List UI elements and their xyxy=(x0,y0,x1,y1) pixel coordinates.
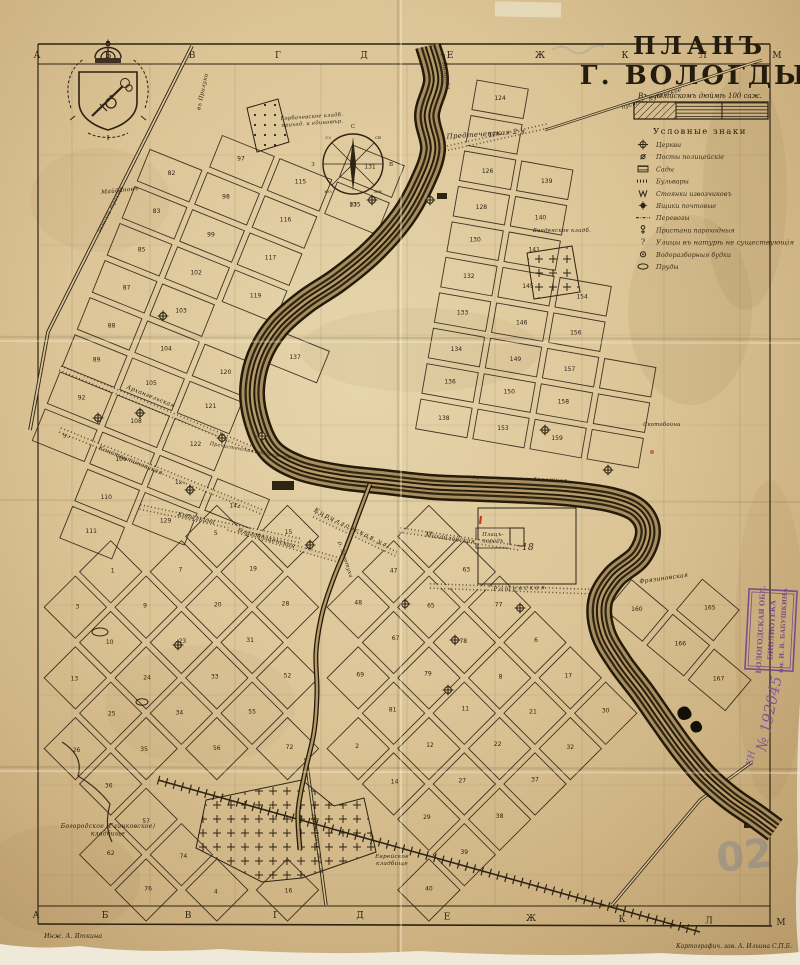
map-sheet: АБВГДЕЖКЛМАБВГДЕЖКЛМ ПЛАНЪ Г. ВОЛОГДЫ. В… xyxy=(0,0,800,965)
block-number: 83 xyxy=(153,208,161,215)
legend-item-label: Пруды xyxy=(655,263,679,271)
block-number: 62 xyxy=(107,850,115,857)
block-number: 3 xyxy=(75,604,79,611)
block-number: 32 xyxy=(566,744,574,751)
legend-item-label: Водоразборныя будки xyxy=(655,251,731,259)
block-number: 12 xyxy=(426,742,434,749)
block-number: 97 xyxy=(237,155,245,162)
block-number: 13 xyxy=(71,675,79,682)
block-number: 153 xyxy=(497,425,509,432)
block-number: 115 xyxy=(295,179,307,186)
block-number: 136 xyxy=(444,379,456,386)
block-number: 69 xyxy=(356,671,364,678)
block-number: 150 xyxy=(503,389,515,396)
block-number: 166 xyxy=(675,641,687,648)
block-number: 128 xyxy=(476,204,488,211)
border-letter-top-А: А xyxy=(34,51,41,61)
legend-item-label: Бульвары xyxy=(655,178,689,186)
block-number: 65 xyxy=(427,603,435,610)
block-number: 5 xyxy=(214,530,218,537)
block-number: 10 xyxy=(106,639,114,646)
legend-heading: Условные знаки xyxy=(653,127,747,137)
map-label-evreyskoe: Еврейскоекладбище xyxy=(374,854,409,867)
block-number: 145 xyxy=(522,283,534,290)
tape-patch xyxy=(495,1,561,17)
block-number: 103 xyxy=(175,308,187,315)
block-number: 134 xyxy=(451,346,463,353)
border-letter-top-Д: Д xyxy=(360,51,367,61)
border-letter-bottom-Б: Б xyxy=(102,911,109,921)
block-number: 30 xyxy=(602,708,610,715)
border-letter-bottom-К: К xyxy=(619,915,626,925)
border-letter-top-Ж: Ж xyxy=(535,51,545,61)
svg-text:СЗ: СЗ xyxy=(325,135,331,140)
cemetery-vvedenskoe xyxy=(527,246,580,299)
block-number: 77 xyxy=(495,602,503,609)
credit-right: Картографич. зав. А. Ильина С.П.Б. xyxy=(675,943,792,950)
block-number: 9 xyxy=(143,603,147,610)
legend-item-label: Пристани пароходныя xyxy=(655,226,735,234)
block-number: 2 xyxy=(355,743,359,750)
border-letter-top-Г: Г xyxy=(275,51,281,61)
legend-item-label: Сады xyxy=(656,165,674,173)
block-number: 19 xyxy=(249,565,257,572)
block-number: 149 xyxy=(510,356,522,363)
block-number: 116 xyxy=(280,217,292,224)
block-number: 122 xyxy=(190,441,202,448)
svg-text:ЮЗ: ЮЗ xyxy=(324,189,332,194)
block-number: 33 xyxy=(211,673,219,680)
border-letter-bottom-В: В xyxy=(185,911,192,921)
block-number: 38 xyxy=(496,813,504,820)
block-number: 81 xyxy=(389,707,397,714)
garden-icon xyxy=(638,166,648,172)
block-number: 16 xyxy=(285,888,293,895)
legend-item-label: Ящики почтовые xyxy=(655,202,716,210)
credit-left: Инж. А. Яткина xyxy=(43,932,102,940)
border-letter-bottom-Ж: Ж xyxy=(526,914,536,924)
legend-item: Сады xyxy=(638,165,674,173)
block-number: 47 xyxy=(390,567,398,574)
block-number: 63 xyxy=(462,566,470,573)
block-number: 99 xyxy=(207,231,215,238)
block-number: 135 xyxy=(349,202,361,209)
legend-item: ?Улицы въ натурѣ не существующія xyxy=(641,238,794,247)
block-number: 154 xyxy=(576,293,588,300)
block-number: 25 xyxy=(108,711,116,718)
block-number: 7 xyxy=(178,566,182,573)
block-number: 140 xyxy=(535,214,547,221)
block-number: 52 xyxy=(284,672,292,679)
plan-title-line1: ПЛАНЪ xyxy=(633,31,767,60)
ghost-digits: 02 xyxy=(714,830,774,882)
block-number: 165 xyxy=(704,604,716,611)
block-number: 74 xyxy=(180,853,188,860)
block-number: 108 xyxy=(130,418,142,425)
block-number: 21 xyxy=(529,709,537,716)
svg-text:В: В xyxy=(389,162,393,168)
block-number: 4 xyxy=(214,889,218,896)
block-number: 133 xyxy=(457,310,469,317)
block-number: 157 xyxy=(564,366,576,373)
svg-text:З: З xyxy=(311,162,315,168)
legend-item-label: Перевозы xyxy=(655,214,690,222)
border-letter-bottom-Д: Д xyxy=(356,911,363,921)
block-number: 98 xyxy=(222,193,230,200)
block-number: 159 xyxy=(551,435,563,442)
legend-item-label: Стоянки извозчиковъ xyxy=(656,190,732,198)
block-number: 11 xyxy=(461,706,469,713)
block-number: 119 xyxy=(250,293,262,300)
block-number: 55 xyxy=(248,709,256,716)
block-number: 22 xyxy=(494,741,502,748)
block-number: 85 xyxy=(138,246,146,253)
block-number: 78 xyxy=(459,638,467,645)
svg-text:С: С xyxy=(351,124,355,130)
block-number: 39 xyxy=(460,849,468,856)
map-label-skotoboyni: Скотобойни xyxy=(643,421,681,428)
block-number: 139 xyxy=(541,178,553,185)
block-number: 111 xyxy=(85,528,97,535)
svg-text:?: ? xyxy=(641,238,645,247)
block-number: 102 xyxy=(190,270,202,277)
block-number: 37 xyxy=(531,777,539,784)
block-number: 132 xyxy=(463,273,475,280)
scale-bar xyxy=(634,102,768,119)
block-number: 105 xyxy=(145,380,157,387)
block-number: 92 xyxy=(78,395,86,402)
block-number: 1 xyxy=(111,567,115,574)
block-number: 167 xyxy=(713,675,725,682)
block-number: 35 xyxy=(140,746,148,753)
block-number: 40 xyxy=(425,886,433,893)
legend-item-label: Улицы въ натурѣ не существующія xyxy=(656,239,794,247)
map-label-block18: 18 xyxy=(522,543,534,553)
block-number: 72 xyxy=(286,744,294,751)
block-number: 126 xyxy=(482,168,494,175)
block-number: 87 xyxy=(123,284,131,291)
border-letter-top-М: М xyxy=(772,51,781,61)
block-number: 8 xyxy=(499,673,503,680)
block-number: 6 xyxy=(534,637,538,644)
border-letter-bottom-Л: Л xyxy=(705,917,713,927)
block-number: 131 xyxy=(364,164,376,171)
block-number: 24 xyxy=(143,674,151,681)
block-number: 130 xyxy=(469,237,481,244)
block-number: 27 xyxy=(458,778,466,785)
question-icon: ? xyxy=(641,238,645,247)
legend-item: Пристани пароходныя xyxy=(641,226,735,235)
block-number: 156 xyxy=(570,330,582,337)
plan-title-line2: Г. ВОЛОГДЫ. xyxy=(580,61,800,91)
block-number: 138 xyxy=(438,415,450,422)
block-number: 76 xyxy=(144,886,152,893)
block-number: 141 xyxy=(528,247,540,254)
block-number: 146 xyxy=(516,320,528,327)
block-number: 17 xyxy=(564,672,572,679)
border-letter-bottom-Е: Е xyxy=(444,912,451,922)
block-number: 26 xyxy=(73,747,81,754)
svg-text:СВ: СВ xyxy=(375,135,381,140)
block-number: 104 xyxy=(160,346,172,353)
block-number: 36 xyxy=(105,783,113,790)
block-number: 117 xyxy=(265,255,277,262)
block-number: 124 xyxy=(494,95,506,102)
block-number: 121 xyxy=(205,403,217,410)
border-letter-bottom-М: М xyxy=(776,918,785,928)
legend-item-label: Посты полицейскіе xyxy=(655,153,724,161)
block-number: 20 xyxy=(214,602,222,609)
block-number: 88 xyxy=(108,323,116,330)
map-canvas: АБВГДЕЖКЛМАБВГДЕЖКЛМ ПЛАНЪ Г. ВОЛОГДЫ. В… xyxy=(0,0,800,965)
block-number: 129 xyxy=(160,517,172,524)
block-number: 79 xyxy=(424,670,432,677)
block-number: 56 xyxy=(213,745,221,752)
block-number: 31 xyxy=(246,637,254,644)
border-letter-bottom-А: А xyxy=(33,911,40,921)
block-number: 160 xyxy=(631,606,643,613)
block-number: 120 xyxy=(220,369,232,376)
border-letter-bottom-Г: Г xyxy=(273,911,279,921)
map-label-platzparad: Плацъ-парадъ xyxy=(481,532,504,545)
gostiny-dvor-building xyxy=(272,481,294,490)
block-number: 89 xyxy=(93,357,101,364)
block-number: 29 xyxy=(423,814,431,821)
block-number: 34 xyxy=(176,710,184,717)
map-label-vvedenskoe: Введенское кладб. xyxy=(532,227,591,234)
legend-item-label: Церкви xyxy=(656,141,681,149)
block-number: 137 xyxy=(289,354,301,361)
block-number: 158 xyxy=(558,399,570,406)
block-number: 82 xyxy=(168,170,176,177)
block-number: 48 xyxy=(354,600,362,607)
border-letter-top-К: К xyxy=(622,51,629,61)
block-number: 28 xyxy=(282,601,290,608)
